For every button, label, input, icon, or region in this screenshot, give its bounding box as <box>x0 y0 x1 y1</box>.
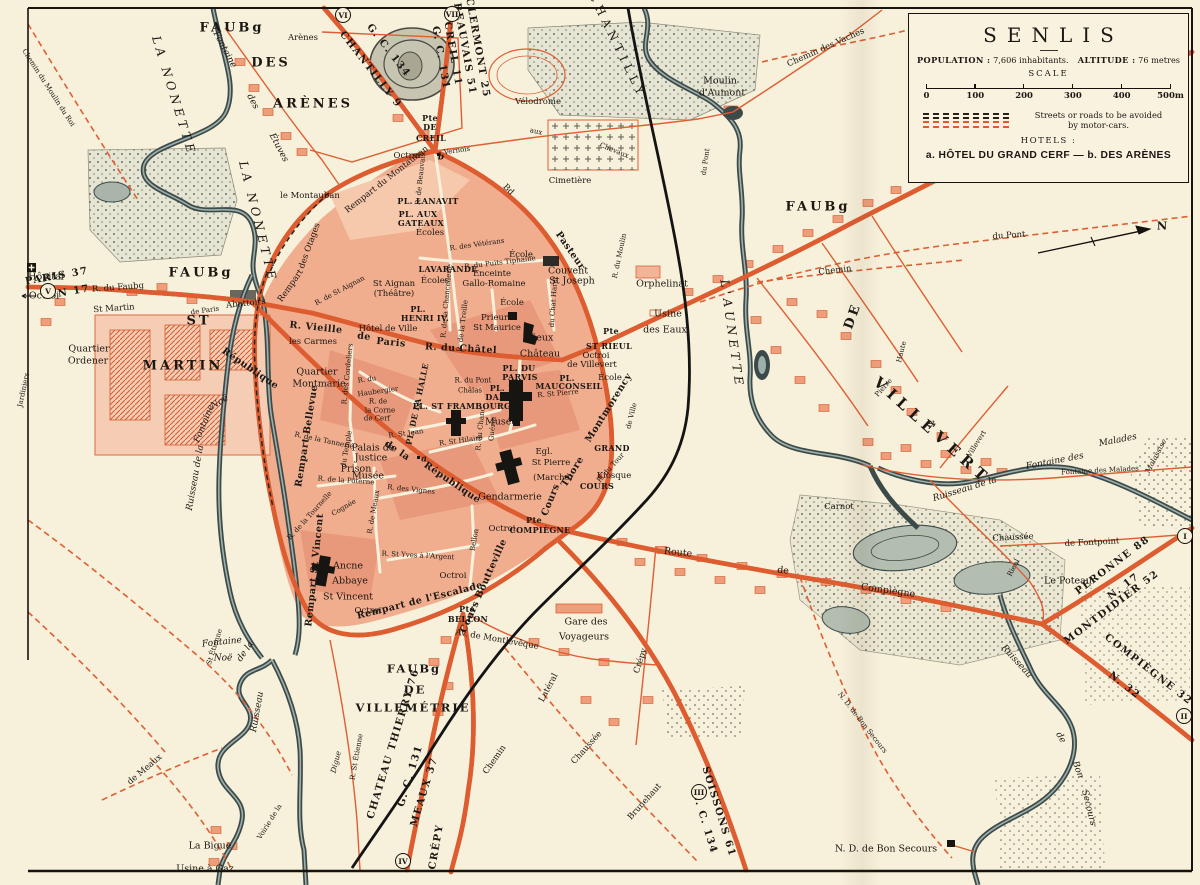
map-label: St Maurice <box>473 324 521 333</box>
population-altitude-line: POPULATION : 7,606 inhabitants. ALTITUDE… <box>909 55 1188 65</box>
map-label: VILLEMÉTRIE <box>356 702 471 714</box>
map-label: Bd <box>501 183 515 197</box>
map-label: Paris <box>376 337 406 350</box>
map-label: Hôpital <box>28 272 64 282</box>
map-label: Ruisseau de la <box>186 445 206 512</box>
map-label: PL. AUX <box>399 210 438 218</box>
map-label: R. du Faubg <box>92 282 145 294</box>
map-label: de Ville <box>625 402 638 430</box>
map-label: R. St Pierre <box>537 389 579 400</box>
scale-tick-label: 500m <box>1157 91 1184 101</box>
map-label: R. du <box>357 375 377 385</box>
map-label: La Bigue <box>189 841 232 851</box>
senlis-map-page: FAUBgDESARÈNESArènesG. C. 134CHANTILLY 9… <box>0 0 1200 885</box>
scale-label: SCALE <box>909 69 1188 79</box>
map-label: CRÉPY <box>428 823 446 870</box>
map-label: Enceinte <box>473 270 511 279</box>
scale-tick <box>926 84 927 89</box>
map-label: R. du Chanc. <box>475 405 487 451</box>
map-label: BELLON <box>448 615 488 623</box>
population-label: POPULATION : <box>917 55 990 65</box>
map-label: MARTIN <box>143 360 224 373</box>
map-label: Ancne <box>333 561 363 571</box>
map-label: St Pierre <box>532 459 571 468</box>
map-label: Rieul <box>1007 558 1022 578</box>
map-label: Gallo-Romaine <box>462 280 525 289</box>
map-label: R. de Meaux <box>367 489 382 534</box>
map-label: N. D. de Bon Secours <box>836 691 888 755</box>
map-label: Digue <box>330 750 343 774</box>
map-label: de Meaux <box>126 753 164 787</box>
scale-tick-label: 300 <box>1064 91 1082 101</box>
map-label: Ruisseau <box>999 644 1033 681</box>
map-label: Secours <box>1079 789 1097 827</box>
map-label: Pte <box>603 327 619 335</box>
map-label: Noë <box>214 655 233 664</box>
map-label: a <box>421 456 427 465</box>
map-label: de <box>357 332 372 343</box>
map-title: SENLIS <box>909 23 1188 47</box>
map-label: Fontaine <box>211 30 238 70</box>
scale-tick <box>1072 84 1073 89</box>
map-label: ST RIEUL <box>586 342 632 350</box>
map-label: Voyageurs <box>559 632 609 642</box>
map-label: DE <box>423 123 437 131</box>
map-label: PL. <box>410 305 425 313</box>
map-label: Ruisseau <box>250 691 266 733</box>
map-label: PL. LANAVIT <box>397 197 458 205</box>
map-label: de Cerf <box>364 416 390 423</box>
map-label: Quartier <box>296 367 337 377</box>
route-marker-I: I <box>1177 528 1193 544</box>
map-label: Egl. <box>535 448 552 457</box>
map-label: COMPIÈGNE <box>510 526 571 534</box>
map-label: St Aignan <box>373 280 415 289</box>
altitude-value: 76 metres <box>1138 55 1180 65</box>
map-label: Route <box>663 547 692 559</box>
map-label: Octroi <box>393 152 420 161</box>
map-label: aux <box>529 127 543 136</box>
map-label: Usine <box>654 309 682 319</box>
map-label: DES <box>251 57 291 70</box>
map-label: R. de St Aignan <box>314 275 366 307</box>
map-label: Jardiniers <box>17 372 31 408</box>
map-label: d'Aumont <box>699 88 745 98</box>
map-label: N <box>1157 220 1170 232</box>
map-label: République <box>422 461 482 506</box>
map-label: R. du Pont <box>455 378 492 385</box>
map-label: le Montauban <box>280 192 340 201</box>
map-label: Étuves <box>267 132 290 164</box>
map-label: Chaussée <box>570 730 604 766</box>
map-label: Fontaine <box>202 636 243 649</box>
map-label: R. des Vétérans <box>449 238 505 253</box>
map-label: Chemin <box>482 744 508 776</box>
map-label: Pte <box>526 516 542 524</box>
map-label: Justice <box>355 453 388 463</box>
map-label: PL. ST FRAMBOURG <box>413 402 511 410</box>
map-label: PL. N. <box>490 384 519 392</box>
map-label: des <box>244 93 259 111</box>
map-label: VILLEVERT <box>871 375 994 488</box>
map-label: (Théâtre) <box>374 290 414 299</box>
map-label: Orphelinat <box>636 279 688 289</box>
map-label: Fontaine des Malades <box>1061 465 1139 476</box>
map-label: R. de <box>369 399 387 406</box>
map-label: des Otages <box>298 222 322 270</box>
avoided-road-symbol <box>923 111 1009 130</box>
map-label: PARVIS <box>502 373 538 381</box>
map-label: Brunehaut <box>627 782 664 822</box>
map-label: R. St Étienne <box>349 733 364 781</box>
map-label: FAUBg <box>786 201 851 214</box>
map-label: des Eaux <box>643 325 687 335</box>
scale-tick-label: 400 <box>1113 91 1131 101</box>
map-label: Voirie de la <box>256 803 283 841</box>
map-label: Chemin du Moulin du Roi <box>20 48 75 128</box>
map-label: du Pont <box>701 148 712 176</box>
map-label: DAME <box>485 393 514 401</box>
scale-tick <box>1023 84 1024 89</box>
scale-tick <box>1170 84 1171 89</box>
map-label: Haute <box>896 341 908 364</box>
map-label: de Villevert <box>567 361 617 370</box>
route-marker-VI: VI <box>335 7 351 23</box>
map-label: Bon <box>1070 760 1085 780</box>
map-label: République <box>220 347 280 392</box>
map-label: R. de la Tournelle <box>286 490 333 541</box>
map-label: Gare des <box>564 617 607 627</box>
map-label: de <box>777 566 790 577</box>
map-label: R. du Moulin <box>612 233 628 279</box>
map-label: Carnot <box>824 503 854 512</box>
map-label: L'AUNETTE <box>718 279 745 390</box>
map-label: Bellon <box>470 528 481 551</box>
scale-tick <box>974 84 975 89</box>
scale-tick <box>1121 84 1122 89</box>
route-marker-II: II <box>1176 708 1192 724</box>
map-label: R. des Cordeliers <box>341 343 354 405</box>
map-label: Écoles <box>416 229 444 238</box>
map-label: b <box>438 154 444 163</box>
map-label: Chevaux <box>599 142 630 160</box>
map-label: Vernois <box>443 146 470 157</box>
map-label: Compiègne <box>860 582 915 599</box>
map-label: Kiosque <box>597 472 632 481</box>
map-label: CHANTILLY <box>586 0 647 101</box>
map-label: COMPIÈGNE 32 <box>1102 633 1193 708</box>
scale-tick-label: 0 <box>924 91 930 101</box>
map-label: N 17 <box>57 284 91 299</box>
map-label: Abbaye <box>332 576 368 586</box>
map-label: Chemin des Vaches <box>786 27 866 69</box>
map-label: Arènes <box>288 34 318 43</box>
map-label: Vélodrome <box>515 98 561 107</box>
scale-bar-line <box>927 88 1171 89</box>
map-label: Villevert <box>966 429 988 458</box>
route-marker-IV: IV <box>395 853 411 869</box>
route-marker-III: III <box>691 784 707 800</box>
map-label: (Marché) <box>533 474 573 483</box>
map-label: Château <box>520 349 560 359</box>
map-label: Ordener <box>68 356 108 366</box>
map-label: PL. DU <box>503 364 536 372</box>
map-label: Ruisseau de la <box>932 476 998 504</box>
map-label: Gendarmerie <box>478 492 541 502</box>
map-label: Chaussée <box>992 533 1034 544</box>
map-label: GATEAUX <box>398 219 444 227</box>
map-label: N. 32 <box>1106 671 1141 702</box>
map-label: les Carmes <box>289 338 337 347</box>
map-label: Malades <box>1098 433 1138 449</box>
map-label: Quartier <box>68 344 109 354</box>
map-label: Guérin <box>488 417 498 442</box>
avoided-road-note: Streets or roads to be avoidedby motor-c… <box>1019 110 1178 131</box>
map-label: LA NONETTE <box>150 34 198 157</box>
map-label: R. des Vignes <box>387 484 436 496</box>
altitude-label: ALTITUDE : <box>1078 55 1136 65</box>
map-label: Av. de Montlévêque <box>455 628 540 651</box>
map-label: Malassise <box>1144 438 1168 475</box>
map-label: GRAND <box>594 444 629 452</box>
map-label: Châlas <box>458 388 482 395</box>
map-label: la Corne <box>365 408 395 415</box>
map-label: LA NONETTE <box>237 160 279 284</box>
map-label: ARÈNES <box>273 98 353 111</box>
map-label: Pte <box>459 605 475 613</box>
map-label: de Fontpoint <box>1064 537 1119 548</box>
map-label: R. Vieille <box>289 320 343 335</box>
map-label: N. D. de Bon Secours <box>835 844 937 854</box>
map-label: R. du Châtel <box>425 342 497 355</box>
map-label: FAUBg <box>200 22 265 35</box>
route-marker-V: V <box>40 283 56 299</box>
map-label: du Pont <box>992 231 1026 242</box>
hotels-line: a. HÔTEL DU GRAND CERF — b. DES ARÈNES <box>909 150 1188 161</box>
legend-panel: SENLIS POPULATION : 7,606 inhabitants. A… <box>908 13 1189 183</box>
map-label: St Martin <box>93 303 135 314</box>
route-marker-VII: VII <box>444 6 460 22</box>
map-label: R. de la Poterne <box>317 476 374 487</box>
scale-bar: 0100200300400500m <box>927 85 1171 103</box>
map-label: DE <box>842 301 864 331</box>
map-label: Crépy <box>633 647 649 674</box>
map-label: Usine à Gaz <box>176 864 234 874</box>
map-label: Cours <box>540 483 561 518</box>
map-label: Chemin <box>818 265 852 277</box>
map-label: Haubergier <box>357 386 399 399</box>
map-label: Noë <box>210 394 231 411</box>
map-label: de <box>1053 731 1066 745</box>
map-label: Rempart St Vincent <box>304 513 325 627</box>
map-label: Abattoirs <box>226 298 266 311</box>
hotels-label: HOTELS : <box>909 136 1188 146</box>
title-underline <box>1040 50 1058 51</box>
population-value: 7,606 inhabitants. <box>993 55 1069 65</box>
map-label: CREIL <box>416 134 446 142</box>
map-label: FAUBg <box>169 267 234 280</box>
map-label: Pte <box>422 114 438 122</box>
map-label: Rempart <box>277 268 305 304</box>
map-label: ST <box>186 315 211 328</box>
map-label: du Chat Haret <box>549 276 560 327</box>
map-label: R. St Yves à l'Argent <box>381 551 454 562</box>
map-label: COURS <box>580 482 614 490</box>
map-label: Cimetière <box>549 177 592 186</box>
map-label: Moulin <box>703 76 737 86</box>
map-label: Vieux <box>527 333 554 343</box>
map-label: Cognée <box>331 498 358 517</box>
map-label: Octroi <box>439 572 466 581</box>
scale-tick-label: 200 <box>1015 91 1033 101</box>
scale-tick-label: 100 <box>966 91 984 101</box>
map-label: Prieuré <box>481 314 513 323</box>
map-label: École <box>500 299 524 308</box>
map-label: St Vincent <box>323 592 373 602</box>
map-label: Latéral <box>538 672 560 703</box>
